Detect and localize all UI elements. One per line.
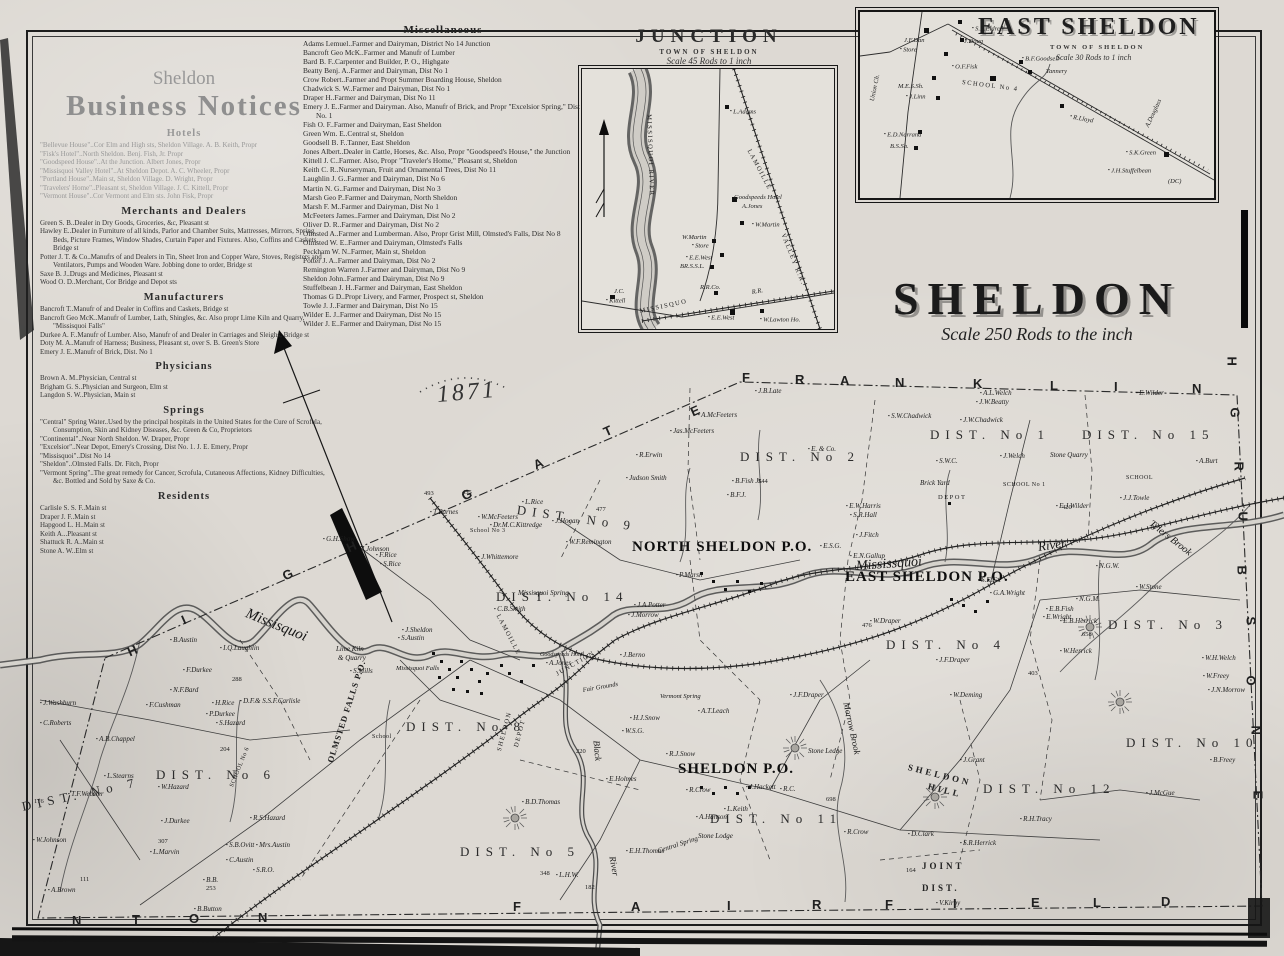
map-label: H xyxy=(344,539,358,555)
directory-entry: "Vermont Spring"..The great remedy for C… xyxy=(40,469,328,486)
map-label: B xyxy=(1236,566,1249,575)
directory-entry: Stuffelbean J. H..Farmer and Dairyman, E… xyxy=(303,283,583,292)
directory-entry: Draper H..Farmer and Dairyman, Dist No 1… xyxy=(303,93,583,102)
map-label: DIST. No 5 xyxy=(460,845,580,858)
business-notices-column: Sheldon Business Notices Hotels"Bellevue… xyxy=(40,68,328,555)
map-label: I.Q.Laughlin xyxy=(220,645,259,652)
directory-entry: "Central" Spring Water..Used by the prin… xyxy=(40,418,328,435)
map-label: N xyxy=(1192,382,1201,395)
miscellaneous-heading: Miscellaneous xyxy=(303,24,583,36)
map-label: L.Keith xyxy=(724,806,748,813)
map-label: W.Martin xyxy=(682,235,707,242)
map-label: 164 xyxy=(906,868,916,875)
map-label: H.Rice xyxy=(212,700,234,707)
map-label: N.G.W. xyxy=(1096,563,1119,570)
map-title-block: SHELDON Scale 250 Rods to the inch xyxy=(872,276,1202,345)
map-label: J.Fitch xyxy=(856,532,879,539)
map-label: DIST. No 4 xyxy=(886,638,1006,651)
directory-entry: Potter J. A..Farmer and Dairyman, Dist N… xyxy=(303,256,583,265)
map-label: E.Wright xyxy=(1043,614,1071,621)
map-label: C.Roberts xyxy=(40,720,71,727)
map-label: E.N.Gallup xyxy=(850,553,885,560)
map-label: River xyxy=(608,856,620,877)
directory-entry: Saxe B. J..Drugs and Medicines, Pleasant… xyxy=(40,270,328,279)
map-label: E.B.Fish xyxy=(1046,606,1074,613)
map-label: R xyxy=(812,898,821,911)
map-label: N xyxy=(1250,726,1263,735)
map-label: R.C. xyxy=(780,786,796,793)
directory-entry: Stone A. W..Elm st xyxy=(40,547,328,556)
map-label: Tylers Brook xyxy=(1147,519,1193,558)
map-label: W.F.Remington xyxy=(566,539,612,546)
directory-entry: Brown A. M..Physician, Central st xyxy=(40,374,328,383)
map-label: R.R. xyxy=(751,288,763,296)
map-label: J.W.Chadwick xyxy=(960,417,1003,424)
map-label: S.Rice xyxy=(380,561,401,568)
map-label: A xyxy=(631,900,640,913)
map-label: W.Herrick xyxy=(1060,648,1092,655)
map-label: J.Washburn xyxy=(40,700,76,707)
map-label: T.Barnes xyxy=(430,509,458,516)
directory-entry: Keith C. R..Nurseryman, Fruit and Orname… xyxy=(303,165,583,174)
map-label: Lime Kiln xyxy=(336,646,364,653)
map-label: H xyxy=(1226,357,1239,366)
map-label: S.E.Eldred xyxy=(972,26,1003,33)
map-label: R.H.Tracy xyxy=(1020,816,1052,823)
junction-inset: JUNCTION TOWN OF SHELDON Scale 45 Rods t… xyxy=(578,26,840,330)
map-label: NORTH SHELDON P.O. xyxy=(632,540,812,555)
directory-entry: Goodsell B. F..Tanner, East Sheldon xyxy=(303,138,583,147)
map-label: W.Draper xyxy=(870,618,901,625)
directory-entry: Hapgood L. H..Main st xyxy=(40,521,328,530)
map-label: N xyxy=(895,376,904,389)
directory-entry: "Goodspeed House"..At the Junction. Albe… xyxy=(40,158,328,167)
map-label: S xyxy=(1245,617,1258,626)
directory-entry: Chadwick S. W..Farmer and Dairyman, Dist… xyxy=(303,84,583,93)
map-label: 477 xyxy=(596,507,606,514)
map-label: F xyxy=(742,371,750,384)
directory-entry: Green S. B..Dealer in Dry Goods, Groceri… xyxy=(40,219,328,228)
map-label: D xyxy=(1161,895,1170,908)
directory-entry: Keith A...Pleasant st xyxy=(40,530,328,539)
map-label: S.W.Chadwick xyxy=(888,413,931,420)
map-label: E.H.Thomas xyxy=(626,848,664,855)
map-label: R xyxy=(1233,462,1246,471)
directory-entry: Towle J. J..Farmer and Dairyman, Dist No… xyxy=(303,301,583,310)
map-label: T.F.Webster xyxy=(68,791,104,798)
map-label: A.Burt xyxy=(1196,458,1218,465)
map-label: E xyxy=(1252,791,1265,800)
directory-entry: Draper J. F..Main st xyxy=(40,513,328,522)
map-label: R.Erwin xyxy=(636,452,662,459)
map-label: W.Stone xyxy=(1136,584,1162,591)
map-label: F xyxy=(513,900,521,913)
map-label: Goodspeeds Hotel xyxy=(540,652,584,658)
directory-entry: "Portland House"..Main st, Sheldon Villa… xyxy=(40,175,328,184)
map-label: H xyxy=(125,643,139,659)
map-label: S.R.Hall xyxy=(850,512,877,519)
directory-entry: Sheldon John..Farmer and Dairyman, Dist … xyxy=(303,274,583,283)
directory-entry: Wilder J. E..Farmer and Dairyman, Dist N… xyxy=(303,319,583,328)
map-label: A xyxy=(531,456,545,472)
map-label: DEPOT xyxy=(938,495,966,502)
directory-entry: "Fisk's Hotel"..North Sheldon. Benj. Fis… xyxy=(40,150,328,159)
map-label: DIST. No 10 xyxy=(1126,736,1259,749)
directory-entry: Adams Lemuel..Farmer and Dairyman, Distr… xyxy=(303,39,583,48)
map-label: SHELDON P.O. xyxy=(678,762,794,777)
business-notices-sections: Hotels"Bellevue House"..Cor Elm and High… xyxy=(40,128,328,555)
map-label: E.J.Wilder xyxy=(1056,503,1089,510)
map-label: J.Welch xyxy=(1000,453,1025,460)
map-label: HILL xyxy=(927,782,963,799)
directory-entry: McFeeters James..Farmer and Dairyman, Di… xyxy=(303,211,583,220)
map-label: I xyxy=(1114,380,1118,393)
map-label: S.R.O. xyxy=(253,867,274,874)
map-label: 493 xyxy=(424,491,434,498)
map-label: F.Durkee xyxy=(183,667,212,674)
map-label: P.Marsh xyxy=(676,572,703,579)
map-label: A.T.Leach xyxy=(698,708,729,715)
map-label: W.H.Welch xyxy=(1202,655,1236,662)
directory-entry: "Missisquoi Valley Hotel"..At Sheldon De… xyxy=(40,167,328,176)
map-label: SCHOOL xyxy=(1126,475,1153,481)
directory-entry: Potter J. T. & Co..Manufrs of and Dealer… xyxy=(40,253,328,270)
east-sheldon-inset: EAST SHELDON TOWN OF SHELDON Scale 30 Ro… xyxy=(858,10,1216,200)
map-label: F xyxy=(885,898,893,911)
map-label: S.R.Herrick xyxy=(960,840,996,847)
map-label: E. & Co. xyxy=(808,446,836,453)
junction-subtitle: TOWN OF SHELDON xyxy=(578,48,840,56)
map-label: School xyxy=(372,734,392,740)
map-label: R xyxy=(795,373,804,386)
map-label: 544 xyxy=(758,479,768,486)
map-label: B.F.J. xyxy=(727,492,746,499)
map-label: W.Hazard xyxy=(158,784,189,791)
map-label: Store xyxy=(692,243,709,250)
map-label: BR.S.S.L. xyxy=(680,264,705,271)
directory-entry: Shattuck R. A..Main st xyxy=(40,538,328,547)
map-label: J.N.Morrow xyxy=(1208,687,1245,694)
map-label: I xyxy=(727,899,731,912)
map-label: G.A.Wright xyxy=(990,590,1025,597)
map-label: W.McFeeters xyxy=(478,514,518,521)
directory-entry: "Excelsior"..Near Depot, Emery's Crossin… xyxy=(40,443,328,452)
map-scale: Scale 250 Rods to the inch xyxy=(872,324,1202,345)
directory-entry: Langdon S. W..Physician, Main st xyxy=(40,391,328,400)
directory-entry: Bancroft Geo McK..Farmer and Manufr of L… xyxy=(303,48,583,57)
map-label: F.Rice xyxy=(376,552,397,559)
map-label: O xyxy=(189,912,199,925)
map-label: 176 xyxy=(34,799,44,806)
section-heading: Physicians xyxy=(40,361,328,372)
directory-entry: Brigham G. S..Physician and Surgeon, Elm… xyxy=(40,383,328,392)
map-label: J.Morrow xyxy=(628,612,659,619)
map-label: E xyxy=(688,403,701,418)
map-label: G xyxy=(280,566,295,582)
map-label: J.Doug xyxy=(964,39,983,46)
directory-entry: Bancroft T..Manufr of and Dealer in Coff… xyxy=(40,305,328,314)
map-title: SHELDON xyxy=(872,276,1202,322)
section-heading: Manufacturers xyxy=(40,292,328,303)
map-label: A.McFeeters xyxy=(698,412,737,419)
directory-entry: Beatty Benj. A..Farmer and Dairyman, Dis… xyxy=(303,66,583,75)
directory-entry: Durkee A. F..Manufr of Lumber. Also, Man… xyxy=(40,331,328,340)
map-label: J.Hackett xyxy=(746,784,776,791)
map-label: E.Holmes xyxy=(606,776,637,783)
map-label: DIST. No 3 xyxy=(1108,618,1228,631)
map-label: R.S.Hazard xyxy=(250,815,285,822)
directory-entry: Thomas G D..Propr Livery, and Farmer, Pr… xyxy=(303,292,583,301)
map-label: J.H.Stuffelbean xyxy=(1108,168,1151,175)
map-label: SCHOOL No 1 xyxy=(1003,482,1046,488)
directory-entry: Emery J. E..Farmer and Dairyman. Also, M… xyxy=(303,102,583,120)
map-label: C.B.Smith xyxy=(494,606,526,613)
map-label: E.W.Harris xyxy=(846,503,881,510)
map-label: E.Wilder xyxy=(1136,390,1164,397)
map-label: E.S.G. xyxy=(820,543,841,550)
directory-entry: Emery J. E..Manufr of Brick, Dist. No 1 xyxy=(40,348,328,357)
map-label: I xyxy=(953,897,957,910)
map-label: A.L.Welch xyxy=(980,390,1012,397)
map-label: P.Durkee xyxy=(206,711,235,718)
directory-entry: Remington Warren J..Farmer and Dairyman,… xyxy=(303,265,583,274)
map-label: DIST. No 6 xyxy=(156,768,276,781)
directory-entry: Hawley E..Dealer in Furniture of all kin… xyxy=(40,227,328,253)
map-label: Mrs.Austin xyxy=(256,842,290,849)
directory-entry: Olmsted W. E..Farmer and Dairyman, Olmst… xyxy=(303,238,583,247)
map-label: Missisquoi Spring xyxy=(518,590,569,597)
map-label: J.Sheldon xyxy=(402,627,433,634)
directory-entry: Marsh Geo P..Farmer and Dairyman, North … xyxy=(303,193,583,202)
map-label: 288 xyxy=(232,677,242,684)
map-label: L.Stearns xyxy=(104,773,134,780)
map-label: D.F.& S.S.F.Carlisle xyxy=(240,698,300,705)
directory-entry: Crow Robert..Farmer and Propt Summer Boa… xyxy=(303,75,583,84)
junction-scale: Scale 45 Rods to 1 inch xyxy=(578,56,840,66)
map-label: J.C. xyxy=(614,289,624,296)
section-heading: Hotels xyxy=(40,128,328,139)
map-label: Kittell xyxy=(606,298,625,305)
map-label: L.Rice xyxy=(522,499,543,506)
directory-entry: Peckham W. N..Farmer, Main st, Sheldon xyxy=(303,247,583,256)
map-label: A xyxy=(840,374,849,387)
map-label: A.Hanson xyxy=(696,814,727,821)
directory-entry: Kittell J. C..Farmer. Also, Propr "Trave… xyxy=(303,156,583,165)
directory-entry: Doty M. A..Manufr of Harness; Business, … xyxy=(40,339,328,348)
map-label: MISSISQUOI RIVER xyxy=(645,114,654,197)
map-label: N xyxy=(258,911,267,924)
map-label: A.B.Chappel xyxy=(96,736,135,743)
map-label: (DC) xyxy=(1168,179,1181,186)
map-label: Morrow Brook xyxy=(842,702,862,756)
map-label: J.Berno xyxy=(620,652,645,659)
directory-entry: Wilder E. J..Farmer and Dairyman, Dist N… xyxy=(303,310,583,319)
map-label: E xyxy=(1031,896,1040,909)
map-label: S.K.Green xyxy=(1126,150,1156,157)
map-label: J.Linn xyxy=(906,94,926,101)
business-notices-town: Sheldon xyxy=(40,68,328,90)
map-label: O xyxy=(1245,676,1258,686)
map-label: J.W.Beatty xyxy=(976,399,1009,406)
map-label: Stone Ledge xyxy=(808,748,842,755)
directory-entry: Laughlin J. G..Farmer and Dairyman, Dist… xyxy=(303,174,583,183)
directory-entry: Oliver D. R..Farmer and Dairyman, Dist N… xyxy=(303,220,583,229)
map-label: MISSISQUO xyxy=(639,299,688,315)
map-label: J.Whittemore xyxy=(478,554,518,561)
map-label: W.Johnson xyxy=(33,837,66,844)
map-label: B.Freey xyxy=(1210,757,1235,764)
directory-entry: "Vermont House"..Cor Vermont and Elm sts… xyxy=(40,192,328,201)
map-label: S.Hazard xyxy=(216,720,245,727)
directory-entry: Carlisle S. S. F..Main st xyxy=(40,504,328,513)
map-label: Store xyxy=(900,47,917,54)
junction-labels: L.AdamsLAMOILLEVALLEY R.R.MISSISQUOI RIV… xyxy=(582,69,834,329)
map-label: G xyxy=(1229,408,1242,418)
map-label: R.R.Co. xyxy=(700,285,720,292)
map-label: Union Ch. xyxy=(870,74,882,102)
map-label: R.Lloyd xyxy=(1069,114,1093,125)
map-label: N.F.Bard xyxy=(170,687,198,694)
map-label: Goodspeeds Hotel xyxy=(734,195,782,202)
map-label: S.B.Ovitt xyxy=(226,842,254,849)
map-label: N.G.M. xyxy=(1076,596,1100,603)
map-label: B.D.Thomas xyxy=(522,799,560,806)
map-label: DIST. No 15 xyxy=(1082,428,1215,441)
map-label: U xyxy=(1237,512,1250,521)
map-label: L.Marvin xyxy=(150,849,179,856)
directory-entry: "Missisquoi"..Dist No 14 xyxy=(40,452,328,461)
map-label: SCHOOL No 4 xyxy=(962,80,1019,93)
directory-entry: Wood O. D..Merchant, Cor Bridge and Depo… xyxy=(40,278,328,287)
map-label: B.B. xyxy=(203,877,218,884)
map-label: J.Durkee xyxy=(161,818,190,825)
map-label: Jas.McFeeters xyxy=(670,428,714,435)
map-label: R.Crow xyxy=(686,787,710,794)
map-label: DIST. No 1 xyxy=(930,428,1050,441)
map-label: I xyxy=(179,613,188,626)
map-label: JOINT xyxy=(922,862,965,871)
map-label: VALLEY R.R. xyxy=(779,233,806,286)
miscellaneous-entries: Adams Lemuel..Farmer and Dairyman, Distr… xyxy=(303,39,583,328)
map-label: J.B.Late xyxy=(755,388,781,395)
map-label: Black xyxy=(592,740,603,761)
directory-entry: "Sheldon"..Olmsted Falls. Dr. Fitch, Pro… xyxy=(40,460,328,469)
map-sheet: 1871DIST. No 1DIST. No 15DIST. No 2DIST.… xyxy=(0,0,1284,956)
map-label: 403 xyxy=(1028,671,1038,678)
map-label: E.E.West xyxy=(708,315,734,322)
map-label: & Quarry xyxy=(338,655,366,662)
map-label: A.Douglass xyxy=(1145,99,1164,129)
map-label: 253 xyxy=(206,886,216,893)
directory-entry: Bard B. F..Carpenter and Builder, P. O.,… xyxy=(303,57,583,66)
map-label: E.D.Narrand xyxy=(884,132,921,139)
map-label: Missisquoi xyxy=(243,607,309,645)
directory-entry: Fish O. F..Farmer and Dairyman, East She… xyxy=(303,120,583,129)
map-label: 204 xyxy=(220,747,230,754)
map-label: 658 xyxy=(1082,632,1092,639)
map-label: 420 xyxy=(1062,505,1072,512)
map-label: LAMOILLE xyxy=(494,614,521,657)
map-label: A.Brown xyxy=(48,887,76,894)
map-label: M.E.S.Sh. xyxy=(898,84,924,91)
map-label: S.W.C. xyxy=(936,458,958,465)
map-label: F.Cushman xyxy=(146,702,181,709)
map-label: J.J.Towle xyxy=(1120,495,1149,502)
map-label: W.Deming xyxy=(950,692,982,699)
directory-entry: Green Wm. E..Central st, Sheldon xyxy=(303,129,583,138)
map-label: 307 xyxy=(158,839,168,846)
map-label: K xyxy=(973,377,982,390)
map-label: R.Crow xyxy=(844,829,868,836)
map-label: 111 xyxy=(80,877,89,884)
map-label: DIST. No 2 xyxy=(740,450,860,463)
map-label: 476 xyxy=(862,623,872,630)
directory-entry: Bancroft Geo McK..Manufr of Lumber, Lath… xyxy=(40,314,328,331)
map-label: T xyxy=(132,913,140,926)
map-label: L.H.W. xyxy=(556,872,579,879)
map-label: S.Mills xyxy=(350,668,373,675)
map-label: B.F.Goodsell xyxy=(1022,56,1059,63)
map-label: J.F.Draper xyxy=(936,657,970,664)
map-label: J.F.Draper xyxy=(790,692,824,699)
map-label: Stone Quarry xyxy=(1050,452,1088,459)
map-label: DIST. No 12 xyxy=(983,782,1116,795)
map-label: W.Freey xyxy=(1203,673,1229,680)
directory-entry: "Continental"..Near North Sheldon. W. Dr… xyxy=(40,435,328,444)
map-label: D.Clark xyxy=(908,831,934,838)
map-label: R.J.Snow xyxy=(666,751,695,758)
map-label: 182 xyxy=(585,885,595,892)
business-notices-title: Business Notices xyxy=(40,90,328,123)
directory-entry: Martin N. G..Farmer and Dairyman, Dist N… xyxy=(303,184,583,193)
map-label: J.Johnson xyxy=(358,546,389,553)
map-label: Judson Smith xyxy=(626,475,667,482)
directory-entry: Marsh F. M..Farmer and Dairyman, Dist No… xyxy=(303,202,583,211)
map-label: J.A.Potter xyxy=(634,602,666,609)
map-label: S.E.G. xyxy=(978,577,999,584)
map-label: 698 xyxy=(826,797,836,804)
miscellaneous-column: Miscellaneous Adams Lemuel..Farmer and D… xyxy=(303,24,583,328)
map-label: J.F.Dan xyxy=(904,38,924,45)
directory-entry: "Travelers' Home"..Pleasant st, Sheldon … xyxy=(40,184,328,193)
map-label: T xyxy=(601,423,614,438)
map-label: DIST. xyxy=(922,884,960,893)
map-label: Dr.M.C.Kittredge xyxy=(490,522,542,529)
map-label: B.Austin xyxy=(170,637,197,644)
map-label: J.Hogan xyxy=(552,518,579,525)
map-label: A.Jones xyxy=(742,204,762,211)
map-label: LAMOILLE xyxy=(745,149,772,192)
directory-entry: "Bellevue House"..Cor Elm and High sts, … xyxy=(40,141,328,150)
section-heading: Springs xyxy=(40,405,328,416)
map-label: Missisquoi Falls xyxy=(396,666,439,673)
map-label: A.Jones xyxy=(546,660,571,667)
east-sheldon-labels: S.E.EldredJ.DougJ.F.DanStoreUnion Ch.O.F… xyxy=(860,12,1214,198)
map-label: L xyxy=(1093,896,1101,909)
map-label: River xyxy=(1037,536,1067,553)
map-label: Brick Yard xyxy=(920,480,950,487)
map-label: Tannery xyxy=(1046,69,1067,76)
map-label: J.Grant xyxy=(960,757,985,764)
map-label: C.Austin xyxy=(226,857,253,864)
map-label: S.Austin xyxy=(398,635,424,642)
map-label: W.Lawton Ho. xyxy=(760,317,800,324)
map-label: J.McGue xyxy=(1146,790,1175,797)
map-label: Stone Lodge xyxy=(698,833,733,840)
map-label: O.F.Fisk xyxy=(952,64,977,71)
map-label: H.J.Snow xyxy=(630,715,660,722)
section-heading: Residents xyxy=(40,491,328,502)
